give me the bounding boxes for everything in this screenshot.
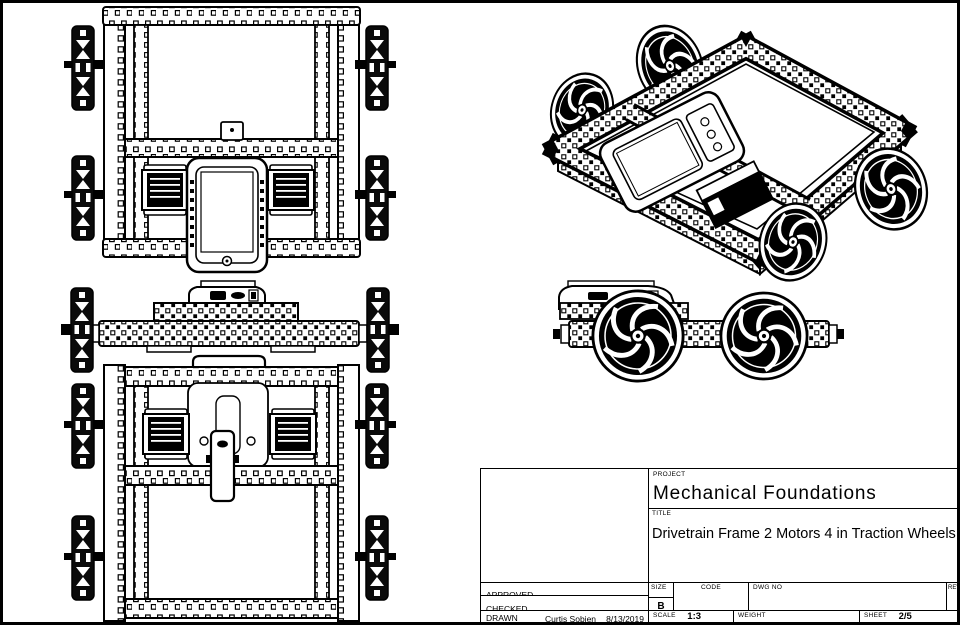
- title-label: TITLE: [652, 511, 958, 518]
- size-label: SIZE: [649, 583, 673, 598]
- front-view-drawing: [61, 281, 399, 372]
- weight-label: WEIGHT: [738, 613, 766, 620]
- project-name: Mechanical Foundations: [653, 483, 877, 505]
- title-cell: TITLE Drivetrain Frame 2 Motors 4 in Tra…: [648, 508, 958, 582]
- rev-label: REV: [948, 585, 958, 591]
- project-cell: PROJECT Mechanical Foundations: [648, 469, 958, 508]
- isometric-view-drawing: [542, 17, 938, 290]
- sheet-label: SHEET: [864, 613, 887, 620]
- code-label: CODE: [674, 585, 748, 592]
- drawing-sheet: APPROVED CHECKED DRAWN Curtis Sobien 8/1…: [0, 0, 960, 625]
- top-view-drawing: [64, 7, 396, 272]
- drawn-by: Curtis Sobien: [545, 614, 596, 624]
- scale-cell: SCALE 1:3: [648, 610, 733, 623]
- dwg-no-label: DWG NO: [753, 585, 946, 592]
- title-block: APPROVED CHECKED DRAWN Curtis Sobien 8/1…: [480, 468, 957, 622]
- drawn-date: 8/13/2019: [606, 614, 644, 624]
- drawn-cell: DRAWN Curtis Sobien 8/13/2019: [481, 610, 648, 623]
- rev-cell: REV: [946, 582, 958, 610]
- scale-value: 1:3: [687, 612, 701, 622]
- dwg-no-cell: DWG NO: [748, 582, 946, 610]
- drawing-title: Drivetrain Frame 2 Motors 4 in Traction …: [652, 526, 956, 542]
- checked-cell: CHECKED: [481, 595, 648, 610]
- sheet-value: 2/5: [899, 612, 912, 622]
- drawn-label: DRAWN: [486, 614, 518, 623]
- approved-cell: APPROVED: [481, 582, 648, 595]
- sheet-cell: SHEET 2/5: [859, 610, 958, 623]
- side-view-drawing: [553, 281, 844, 381]
- size-cell: SIZE B: [648, 582, 673, 610]
- weight-cell: WEIGHT: [733, 610, 859, 623]
- bottom-view-drawing: [64, 356, 396, 621]
- scale-label: SCALE: [653, 613, 676, 620]
- code-cell: CODE: [673, 582, 748, 610]
- project-label: PROJECT: [653, 472, 958, 479]
- title-block-empty-cell: [481, 469, 648, 582]
